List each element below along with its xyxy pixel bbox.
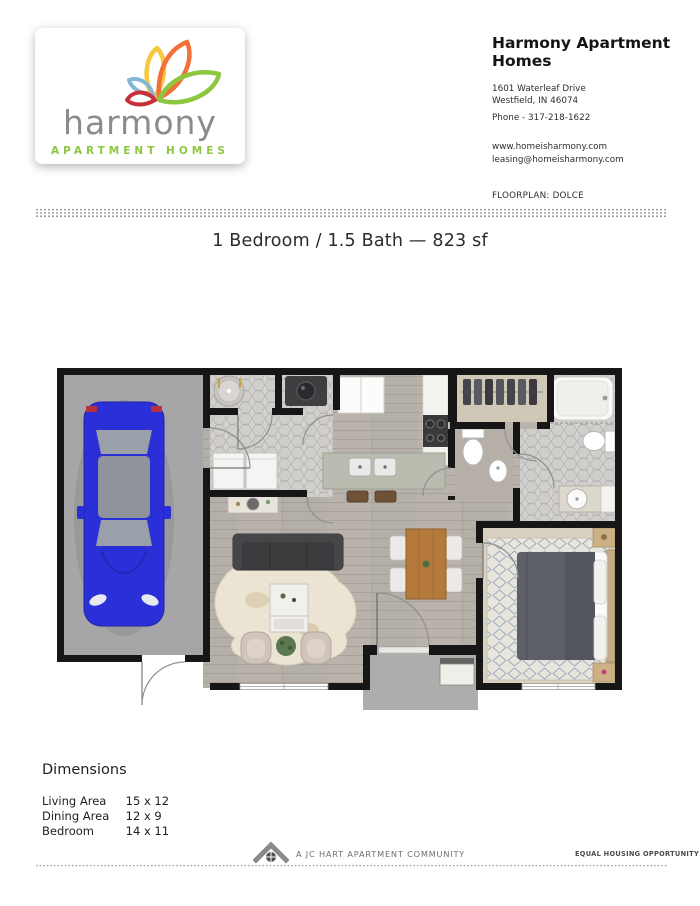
pedestal-sink [489,460,507,482]
dimension-label: Dining Area [42,809,122,824]
living-window [240,684,328,690]
bed [517,550,615,662]
hanging-clothes [463,379,537,405]
coffee-table [270,584,308,632]
equal-housing-text: EQUAL HOUSING OPPORTUNITY [575,850,699,858]
console-table [228,496,278,513]
bar-stool [375,491,396,502]
dining-chair [446,536,462,560]
jchart-house-icon [253,840,289,864]
floorplan-image [57,368,622,714]
logo-card: harmony APARTMENT HOMES [35,28,245,164]
email-link[interactable]: leasing@homeisharmony.com [492,154,672,167]
dotted-separator-bottom [35,864,667,868]
floorplan-svg [57,368,622,714]
refrigerator [338,377,384,413]
armchair [301,632,331,664]
unit-summary-title: 1 Bedroom / 1.5 Bath — 823 sf [0,231,700,251]
community-footer-text: A JC HART APARTMENT COMMUNITY [296,849,465,859]
bedroom-window [522,684,595,690]
porch-bench [440,658,474,685]
logo-brand-name: harmony [35,106,245,139]
dotted-separator-top [35,208,667,218]
harmony-petals-icon [107,36,229,112]
bathtub [552,377,613,420]
pillow [594,560,606,604]
address-line-2: Westfield, IN 46074 [492,95,672,108]
toilet [583,431,615,452]
dimension-value: 14 x 11 [126,824,169,838]
dining-chair [390,568,406,592]
garage [74,400,174,636]
dimension-label: Living Area [42,794,122,809]
stove [423,415,448,447]
dimension-row: Dining Area 12 x 9 [42,809,282,824]
door-threshold [379,647,429,653]
plant [276,636,296,656]
dining-chair [390,536,406,560]
address-line-1: 1601 Waterleaf Drive [492,83,672,96]
dining-chair [446,568,462,592]
utility-closet [285,376,327,406]
dimensions-heading: Dimensions [42,762,282,778]
car [77,402,171,626]
flyer-page: harmony APARTMENT HOMES Harmony Apartmen… [0,0,700,906]
pillow [594,616,606,660]
contact-block: Harmony Apartment Homes 1601 Waterleaf D… [492,34,672,166]
bathroom-tile-floor2 [520,429,550,521]
dimensions-section: Dimensions Living Area 15 x 12 Dining Ar… [42,762,282,840]
toilet [463,439,483,465]
sofa [233,534,343,570]
bar-stool [347,491,368,502]
dimension-value: 12 x 9 [126,809,162,823]
logo-brand-tagline: APARTMENT HOMES [35,145,245,157]
dimension-value: 15 x 12 [126,794,169,808]
website-link[interactable]: www.homeisharmony.com [492,141,672,154]
bath-vanity [559,486,615,512]
dimension-label: Bedroom [42,824,122,839]
dimension-row: Bedroom 14 x 11 [42,824,282,839]
armchair [241,632,271,664]
property-title: Harmony Apartment Homes [492,34,672,71]
phone-line: Phone - 317-218-1622 [492,112,672,125]
dimension-row: Living Area 15 x 12 [42,794,282,809]
floorplan-name-label: FLOORPLAN: DOLCE [492,191,584,201]
